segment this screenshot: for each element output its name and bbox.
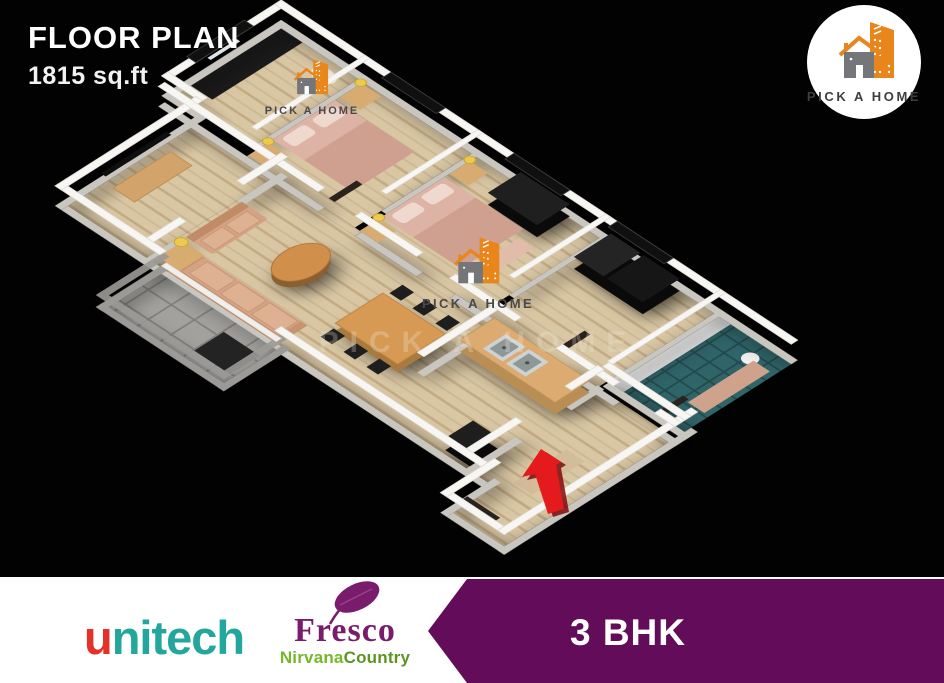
- poster-canvas: PICK A HOME PICK A HOME PICK A HOME FLOO…: [0, 0, 944, 683]
- bhk-label: 3 BHK: [570, 612, 686, 653]
- page-title: FLOOR PLAN: [28, 20, 240, 55]
- fresco-subtitle: NirvanaCountry: [280, 648, 411, 667]
- unitech-u: u: [84, 611, 112, 664]
- unitech-logo: unitech: [84, 611, 244, 664]
- floor-watermark-text: PICK A HOME: [319, 326, 638, 359]
- badge-label: PICK A HOME: [807, 89, 921, 104]
- fresco-name: Fresco: [294, 612, 396, 649]
- wall-decal-text: PICK A HOME: [422, 296, 534, 311]
- country-word: Country: [344, 648, 411, 667]
- floor-plan-poster: PICK A HOME PICK A HOME PICK A HOME FLOO…: [0, 0, 944, 683]
- area-label: 1815 sq.ft: [28, 62, 149, 90]
- wall-decal-text: PICK A HOME: [265, 105, 360, 117]
- nirvana-word: Nirvana: [280, 648, 344, 667]
- footer-bar: 3 BHK unitech Fresco NirvanaCountry: [0, 575, 944, 683]
- unitech-rest: nitech: [112, 611, 244, 664]
- brand-badge: PICK A HOME: [807, 5, 921, 119]
